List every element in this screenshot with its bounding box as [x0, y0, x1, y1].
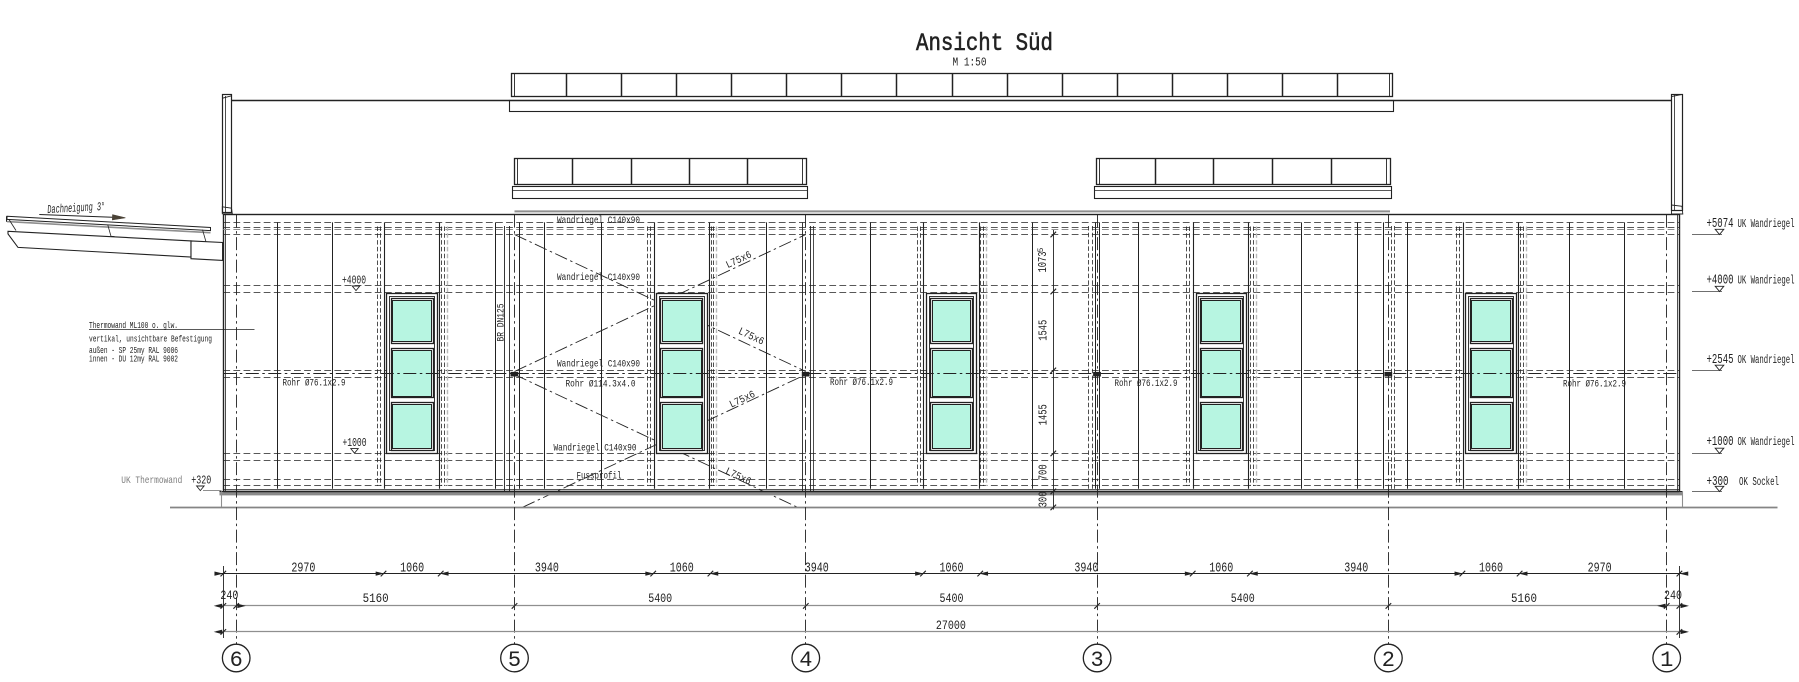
svg-text:1060: 1060: [1209, 561, 1233, 576]
svg-text:240: 240: [1664, 588, 1682, 603]
svg-text:OK Wandriegel: OK Wandriegel: [1738, 354, 1795, 367]
svg-text:3940: 3940: [805, 561, 829, 576]
svg-text:3940: 3940: [535, 561, 559, 576]
svg-text:2: 2: [1382, 648, 1395, 673]
svg-text:1073: 1073: [1037, 251, 1050, 272]
svg-text:5160: 5160: [363, 591, 389, 606]
svg-text:1060: 1060: [1479, 561, 1503, 576]
svg-text:+300: +300: [1707, 474, 1729, 490]
svg-text:2970: 2970: [291, 561, 315, 576]
svg-text:Rohr Ø114.3x4.0: Rohr Ø114.3x4.0: [566, 379, 636, 391]
svg-text:1: 1: [1660, 648, 1673, 673]
svg-text:6: 6: [230, 648, 243, 673]
svg-text:3940: 3940: [1074, 561, 1098, 576]
svg-text:1545: 1545: [1038, 320, 1051, 341]
svg-text:Rohr Ø76.1x2.9: Rohr Ø76.1x2.9: [830, 377, 893, 389]
svg-text:3: 3: [1090, 648, 1103, 673]
svg-text:Wandriegel C140x90: Wandriegel C140x90: [557, 272, 640, 284]
svg-text:1455: 1455: [1038, 404, 1051, 425]
svg-text:+1000: +1000: [343, 436, 367, 450]
svg-text:5400: 5400: [648, 591, 672, 606]
svg-text:Rohr Ø76.1x2.9: Rohr Ø76.1x2.9: [1563, 379, 1626, 391]
svg-text:UK Wandriegel: UK Wandriegel: [1738, 218, 1795, 231]
svg-text:240: 240: [220, 588, 238, 603]
svg-text:innen - DU 12my RAL 9002: innen - DU 12my RAL 9002: [89, 355, 178, 365]
svg-text:5400: 5400: [1231, 591, 1255, 606]
svg-text:Rohr Ø76.1x2.9: Rohr Ø76.1x2.9: [283, 378, 346, 390]
svg-text:vertikal, unsichtbare Befestig: vertikal, unsichtbare Befestigung: [89, 335, 212, 345]
svg-text:300: 300: [1038, 491, 1051, 507]
svg-text:2970: 2970: [1588, 561, 1612, 576]
svg-text:Wandriegel C140x90: Wandriegel C140x90: [554, 443, 637, 455]
svg-text:5: 5: [1037, 247, 1046, 252]
svg-text:Wandriegel C140x90: Wandriegel C140x90: [557, 358, 640, 370]
svg-text:M 1:50: M 1:50: [953, 56, 987, 69]
svg-text:UK Wandriegel: UK Wandriegel: [1738, 274, 1795, 287]
svg-text:3940: 3940: [1344, 561, 1368, 576]
svg-text:OK Sockel: OK Sockel: [1739, 476, 1779, 489]
svg-text:+320: +320: [191, 473, 211, 487]
svg-text:Wandriegel C140x90: Wandriegel C140x90: [557, 215, 640, 227]
svg-text:UK Thermowand: UK Thermowand: [121, 475, 182, 487]
svg-text:BR DN125: BR DN125: [497, 304, 508, 342]
svg-text:Fussprofil: Fussprofil: [577, 471, 622, 483]
svg-text:1060: 1060: [670, 561, 694, 576]
svg-text:Rohr Ø76.1x2.9: Rohr Ø76.1x2.9: [1115, 378, 1178, 390]
svg-text:1060: 1060: [940, 561, 964, 576]
svg-text:700: 700: [1038, 464, 1051, 480]
svg-text:+1000: +1000: [1707, 434, 1734, 450]
svg-text:27000: 27000: [936, 618, 966, 633]
svg-text:1060: 1060: [400, 561, 424, 576]
svg-text:4: 4: [799, 648, 812, 673]
svg-text:5160: 5160: [1511, 591, 1537, 606]
svg-text:5: 5: [508, 648, 521, 673]
svg-text:Ansicht Süd: Ansicht Süd: [916, 29, 1053, 58]
svg-text:OK Wandriegel: OK Wandriegel: [1738, 436, 1795, 449]
svg-text:5400: 5400: [940, 591, 964, 606]
